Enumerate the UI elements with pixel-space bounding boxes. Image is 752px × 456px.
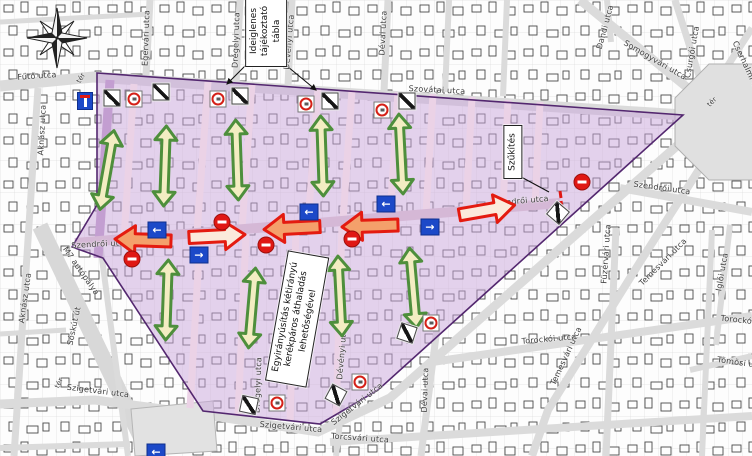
two-way-bike-arrow (310, 116, 335, 197)
one-way-direction-arrow (188, 221, 245, 252)
two-way-bike-arrow (327, 255, 353, 336)
one-way-direction-arrow (115, 225, 172, 255)
traffic-plan-map: Fűtő utcatérAknász utcaEgervári utcaDrég… (0, 0, 752, 456)
two-way-bike-arrow (153, 126, 178, 207)
two-way-bike-arrow (399, 247, 428, 329)
one-way-direction-arrow (342, 211, 399, 241)
two-way-bike-arrow (89, 129, 125, 212)
two-way-bike-arrow (225, 120, 250, 201)
one-way-direction-arrows (115, 191, 517, 255)
one-way-direction-arrow (263, 213, 320, 244)
two-way-bike-arrow (155, 260, 180, 341)
two-way-bike-arrow (388, 113, 414, 194)
two-way-bike-arrow (238, 267, 267, 349)
arrows-svg (0, 0, 752, 456)
one-way-direction-arrow (457, 191, 517, 228)
